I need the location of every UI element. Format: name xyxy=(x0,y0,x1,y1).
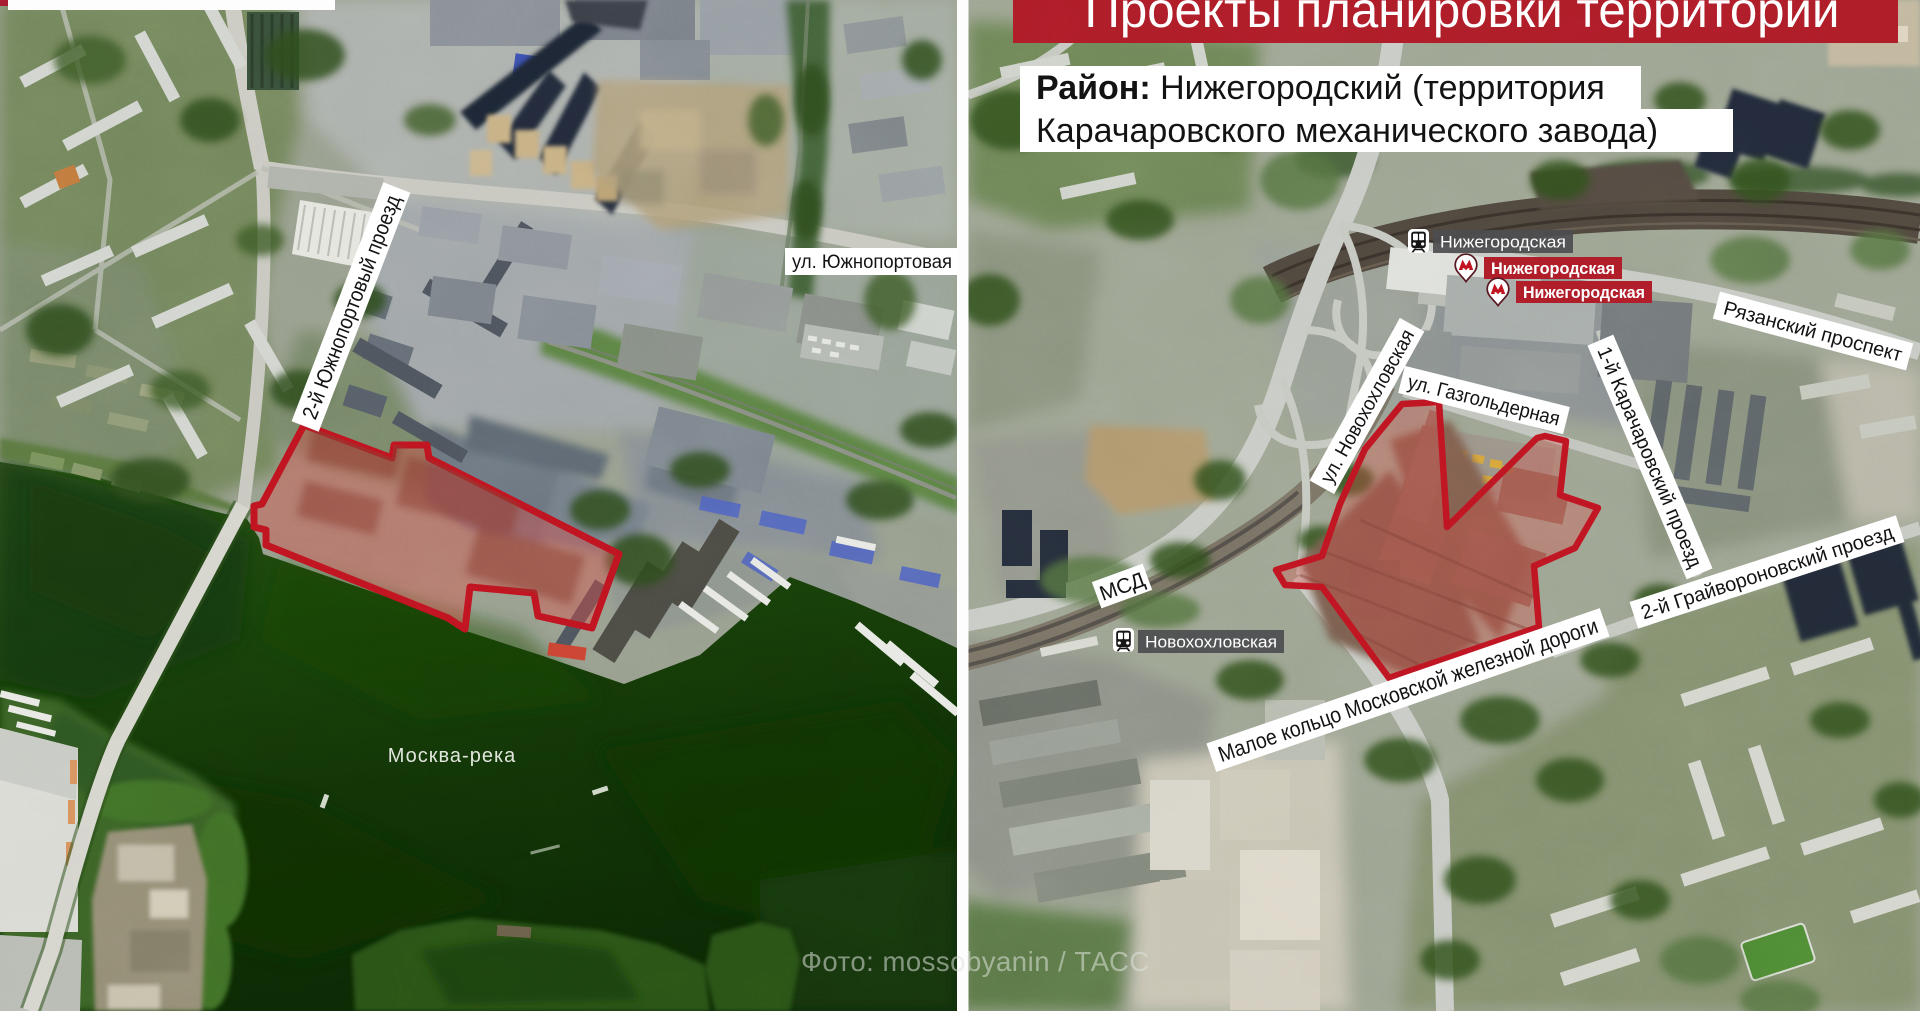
svg-text:Фото: mossobyanin / ТАСС: Фото: mossobyanin / ТАСС xyxy=(801,946,1150,977)
